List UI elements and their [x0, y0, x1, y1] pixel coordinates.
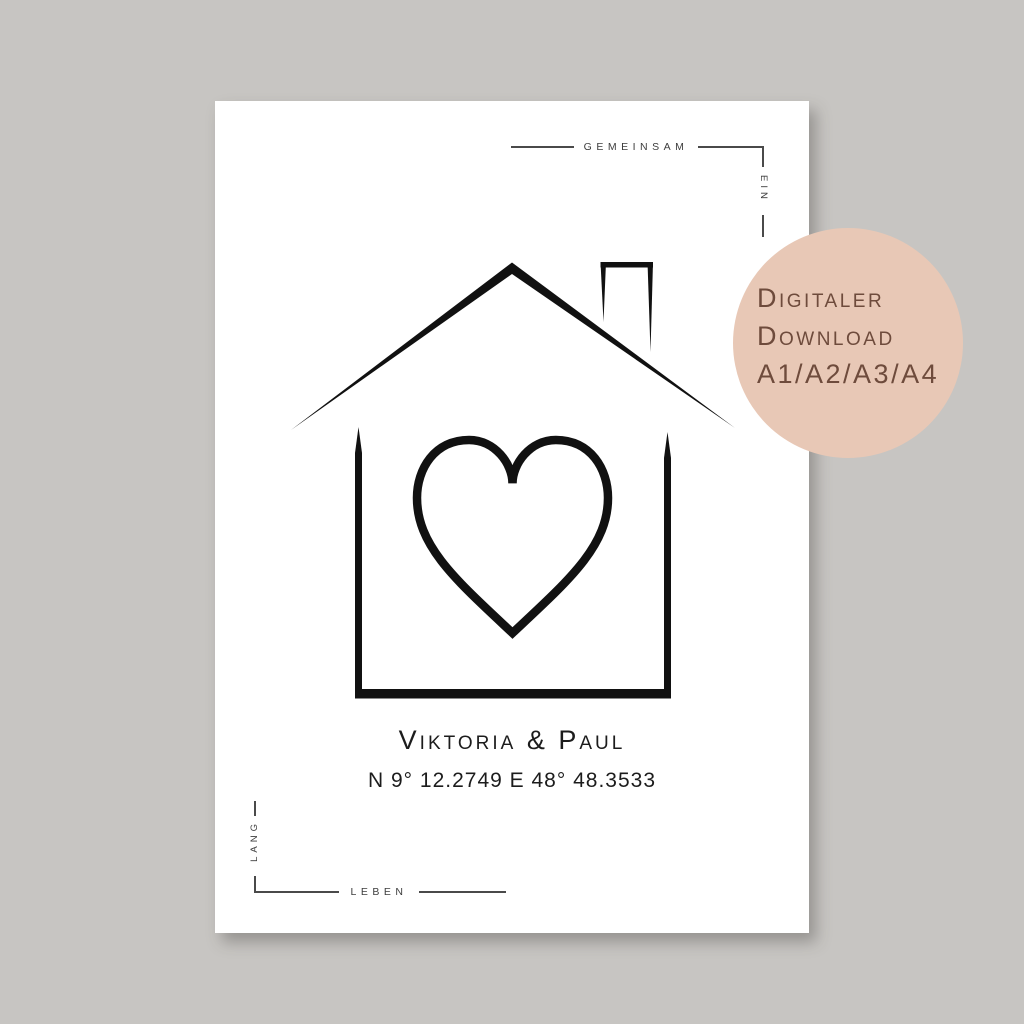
ornament-word-leben: LEBEN: [339, 884, 419, 900]
chimney-top-line: [601, 262, 654, 268]
heart-outline: [417, 440, 608, 633]
ornament-line: [419, 891, 506, 893]
chimney-left-line: [601, 262, 607, 322]
download-badge: Digitaler Download A1/A2/A3/A4: [733, 228, 963, 458]
ornament-line: [254, 801, 256, 816]
badge-line-download: Download: [757, 317, 963, 355]
house-base-line: [355, 689, 671, 699]
poster: GEMEINSAM EIN Viktoria & Paul N 9° 12.27…: [215, 101, 809, 933]
roof-line: [291, 263, 735, 431]
gps-coordinates: N 9° 12.2749 E 48° 48.3533: [215, 769, 809, 793]
left-wall-line: [355, 427, 362, 698]
chimney-right-line: [648, 262, 654, 352]
right-wall-line: [664, 432, 671, 698]
house-line-art: [215, 101, 809, 933]
badge-line-formats: A1/A2/A3/A4: [757, 355, 963, 393]
product-image: GEMEINSAM EIN Viktoria & Paul N 9° 12.27…: [0, 0, 1024, 1024]
ornament-line: [254, 891, 339, 893]
couple-names: Viktoria & Paul: [215, 725, 809, 755]
badge-line-digitaler: Digitaler: [757, 279, 963, 317]
ornament-word-lang: LANG: [247, 820, 263, 862]
